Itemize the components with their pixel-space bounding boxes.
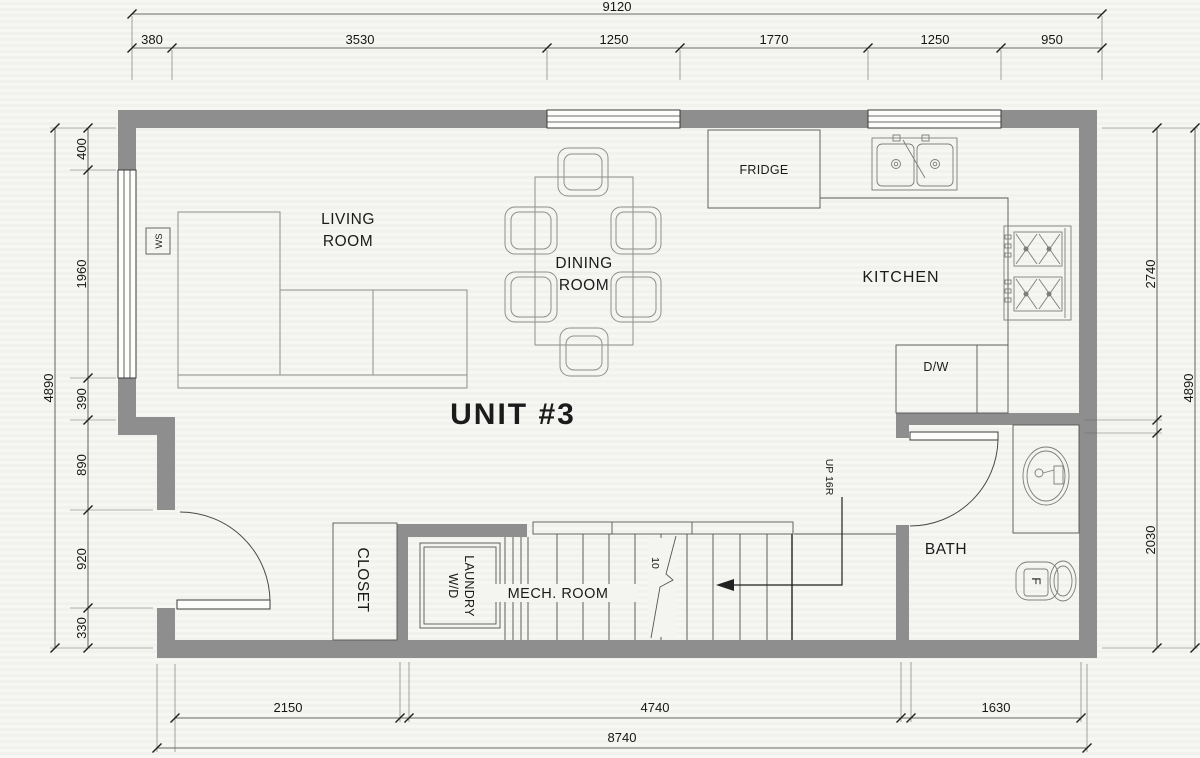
dishwasher-label: D/W <box>923 360 948 374</box>
dim-left-2: 390 <box>74 388 89 410</box>
dim-top-1: 3530 <box>346 32 375 47</box>
mech-room-label: MECH. ROOM <box>508 586 609 602</box>
svg-text:WS: WS <box>154 233 165 248</box>
dining-chair <box>611 207 661 254</box>
windows <box>118 110 1001 378</box>
dim-top-2: 1250 <box>600 32 629 47</box>
closet-label: CLOSET <box>354 547 371 612</box>
kitchen-label: KITCHEN <box>862 269 939 286</box>
dim-left-1: 1960 <box>74 260 89 289</box>
window-top-1 <box>547 110 680 128</box>
wall-bath-left-a <box>896 425 909 438</box>
window-top-2 <box>868 110 1001 128</box>
wall-kitchen-bath <box>896 413 1079 425</box>
wall-mech-top <box>397 524 527 537</box>
wall-closet-divider <box>397 524 408 640</box>
kitchen-sink <box>872 135 957 190</box>
wall-entry-lower <box>157 608 175 640</box>
dining-chair <box>505 272 557 322</box>
dimensions-top: 9120 380 3530 1250 1770 1250 950 <box>128 0 1107 80</box>
wall-left-jog <box>118 417 175 435</box>
svg-text:LAUNDRY: LAUNDRY <box>462 555 476 617</box>
toilet-mark: F <box>1029 577 1043 584</box>
stairs <box>505 497 896 640</box>
window-left-wall <box>118 170 136 378</box>
dim-top-0: 380 <box>141 32 163 47</box>
dim-right-1: 2030 <box>1143 526 1158 555</box>
sofa-rail <box>178 375 467 388</box>
fridge-label: FRIDGE <box>739 163 788 177</box>
dim-bottom-0: 2150 <box>274 700 303 715</box>
dining-room-label2: ROOM <box>559 277 609 294</box>
dim-right-0: 2740 <box>1143 260 1158 289</box>
dim-top-5: 950 <box>1041 32 1063 47</box>
bath-door <box>910 432 998 526</box>
dim-bottom-2: 1630 <box>982 700 1011 715</box>
stair-count-label: 10 <box>649 557 661 569</box>
dimensions-bottom: 2150 4740 1630 8740 <box>153 662 1092 753</box>
bath-label: BATH <box>925 541 967 558</box>
dim-right-overall: 4890 <box>1181 374 1196 403</box>
stair-up-arrow <box>716 497 842 591</box>
toilet <box>1016 561 1076 601</box>
dim-top-overall: 9120 <box>603 0 632 14</box>
dim-top-4: 1250 <box>921 32 950 47</box>
dim-top-3: 1770 <box>760 32 789 47</box>
living-room-label2: ROOM <box>323 233 373 250</box>
dim-bottom-1: 4740 <box>641 700 670 715</box>
wall-left-upper <box>118 110 136 170</box>
stove <box>1004 226 1071 320</box>
wall-bath-left-b <box>896 525 909 640</box>
bath-fixtures <box>1013 425 1079 601</box>
unit-title: UNIT #3 <box>450 398 576 431</box>
stair-up-label: UP 16R <box>823 459 835 496</box>
floor-plan: UNIT #3 LIVING ROOM DINING ROOM KITCHEN … <box>0 0 1200 758</box>
vanity-sink <box>1013 425 1079 533</box>
dim-bottom-overall: 8740 <box>608 730 637 745</box>
dimensions-right: 2740 2030 4890 <box>1084 124 1200 653</box>
dining-chair <box>505 207 557 254</box>
sofa-chaise <box>178 212 280 375</box>
laundry-label: LAUNDRY W/D <box>446 555 476 617</box>
dining-chair <box>611 272 661 322</box>
dining-chair <box>560 328 608 376</box>
wall-right <box>1079 110 1097 658</box>
dim-left-0: 400 <box>74 138 89 160</box>
svg-text:W/D: W/D <box>446 573 460 598</box>
wall-entry-upper <box>157 435 175 510</box>
walls <box>118 110 1097 658</box>
wall-bottom <box>157 640 1097 658</box>
dim-left-4: 920 <box>74 548 89 570</box>
stair-rail <box>533 522 793 534</box>
dining-chair <box>558 148 608 196</box>
dim-left-5: 330 <box>74 617 89 639</box>
dim-left-3: 890 <box>74 454 89 476</box>
dining-room-label: DINING <box>555 255 612 272</box>
doors <box>177 432 998 609</box>
entry-door <box>177 512 270 609</box>
wall-switch: WS <box>146 228 170 254</box>
dim-left-overall: 4890 <box>41 374 56 403</box>
living-room-label: LIVING <box>321 211 375 228</box>
dishwasher-cabinet <box>896 345 1008 413</box>
